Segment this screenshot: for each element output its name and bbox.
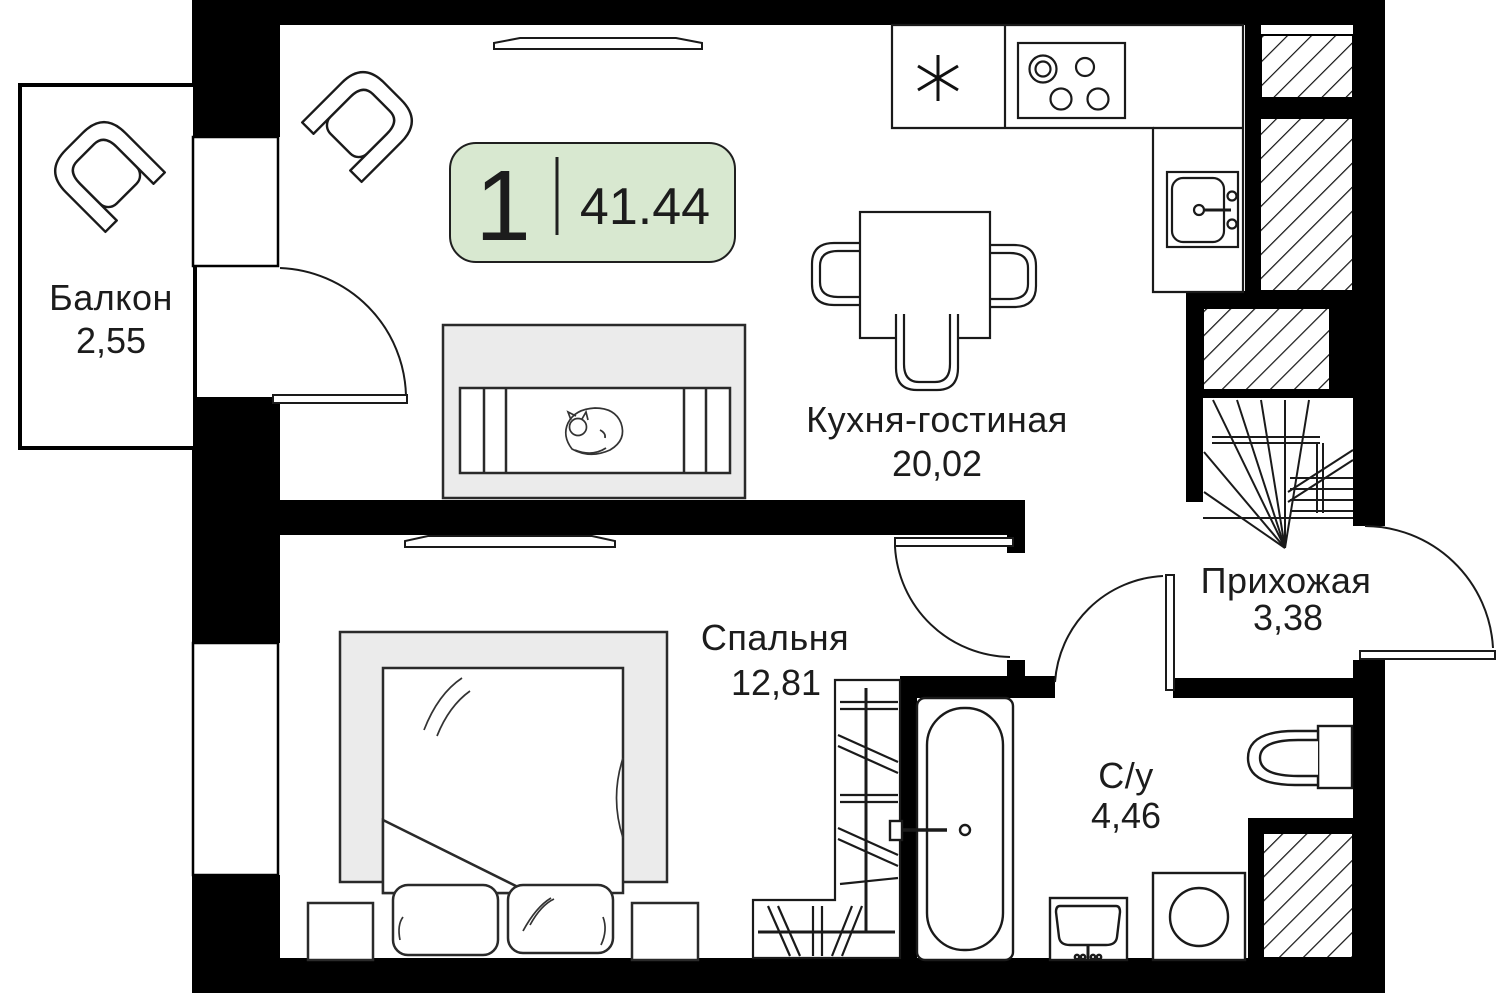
wall-top-left-column [192, 0, 280, 137]
wardrobe-icon [753, 680, 900, 958]
sofa-icon [443, 325, 745, 498]
room-name: Прихожая [1201, 560, 1372, 601]
wall-shaft-divider [1261, 98, 1353, 118]
room-name: Спальня [701, 617, 849, 658]
door-arc-entrance [1365, 526, 1493, 648]
room-area: 20,02 [892, 443, 982, 484]
wall-bathroom-top-right [1173, 678, 1353, 698]
wall-shaft3-right [1330, 308, 1353, 398]
dining-chair-icon [896, 314, 958, 390]
wall-left-mid [192, 397, 280, 643]
room-name: Кухня-гостиная [806, 399, 1068, 440]
door-leaf-entrance [1360, 651, 1495, 659]
room-area: 2,55 [76, 320, 146, 361]
wall-top [192, 0, 1385, 25]
staircase-icon [1203, 400, 1353, 548]
room-name: С/у [1098, 755, 1154, 796]
dining-set [812, 212, 1036, 390]
pillow-icon [393, 885, 498, 955]
room-area: 3,38 [1253, 597, 1323, 638]
armchair-living-icon [302, 62, 422, 182]
door-arc-bathroom [1055, 576, 1163, 682]
wall-right-upper [1353, 0, 1385, 526]
wall-bathroom-top-left [900, 676, 1055, 698]
wall-under-shaft2 [1186, 291, 1385, 308]
door-arc-bedroom [895, 547, 1010, 657]
room-label-kitchen-living: Кухня-гостиная 20,02 [806, 399, 1068, 484]
tv-icon-living [494, 38, 702, 49]
shaft-icon [1261, 35, 1353, 98]
washbasin-icon [1050, 898, 1127, 961]
room-name: Балкон [49, 277, 173, 318]
nightstand-icon [632, 903, 698, 960]
room-label-hallway: Прихожая 3,38 [1201, 560, 1372, 638]
wall-kitchen-shaft [1245, 25, 1261, 300]
door-leaf-balcony [273, 395, 407, 403]
window-bedroom [193, 643, 278, 875]
toilet-icon [1248, 726, 1352, 788]
nightstand-icon [308, 903, 373, 960]
floor-plan: Кухня-гостиная 20,02 Спальня 12,81 Прихо… [0, 0, 1500, 993]
badge-area: 41.44 [580, 178, 710, 236]
cooktop-icon [1018, 43, 1125, 118]
room-area: 12,81 [731, 662, 821, 703]
wall-shaft4-top [1248, 818, 1353, 833]
door-arc-balcony [280, 268, 406, 396]
floor-plan-page: Кухня-гостиная 20,02 Спальня 12,81 Прихо… [0, 0, 1500, 993]
wall-bedroom-kitchen [280, 500, 1025, 535]
plan-badge: 1 41.44 [450, 143, 735, 262]
room-area: 4,46 [1091, 795, 1161, 836]
tv-icon-bedroom [405, 536, 615, 547]
pillow-icon [508, 885, 613, 953]
wall-stub-bottom [1007, 660, 1025, 678]
wall-right-lower [1353, 660, 1385, 958]
shaft-icon [1260, 118, 1353, 291]
washing-machine-icon [1153, 873, 1245, 960]
room-label-bathroom: С/у 4,46 [1091, 755, 1161, 836]
shaft-icon [1203, 308, 1330, 390]
wall-stairwell-left [1186, 292, 1203, 502]
shaft-icon [1263, 833, 1353, 958]
window-balcony [193, 137, 278, 266]
door-leaf-bathroom [1166, 575, 1174, 690]
door-leaf-bedroom [895, 538, 1013, 546]
badge-rooms-count: 1 [475, 150, 531, 262]
wall-bedroom-bathroom [900, 676, 917, 958]
room-label-bedroom: Спальня 12,81 [701, 617, 849, 703]
wall-bottom [192, 958, 1385, 993]
wall-shaft4-left [1248, 818, 1263, 958]
wall-shaft3-bottom [1203, 390, 1353, 398]
